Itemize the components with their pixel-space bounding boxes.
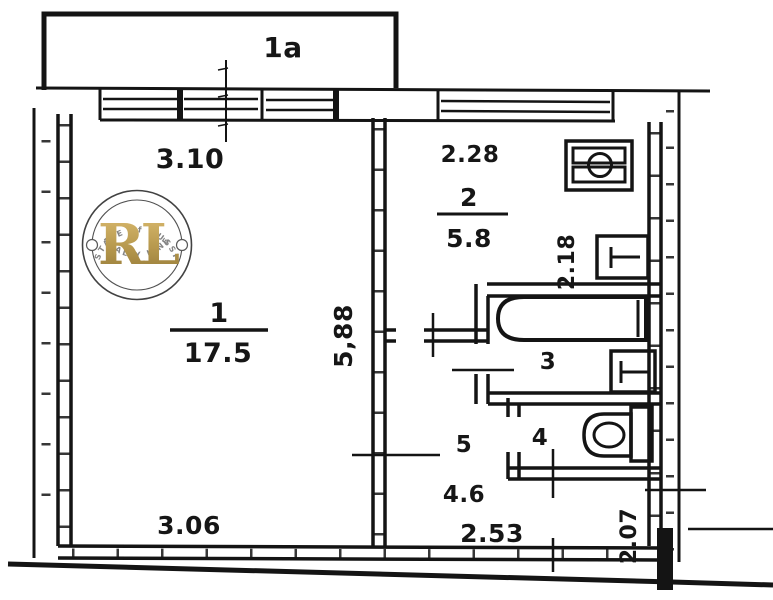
- room3-number: 3: [540, 349, 557, 375]
- window-band: [36, 88, 710, 121]
- kitchen-width-dim: 2.28: [441, 142, 500, 168]
- room1-width-top-dim: 3.10: [156, 144, 225, 175]
- bathtub-icon: [498, 297, 646, 340]
- stamp-monogram: RL: [98, 212, 180, 278]
- kitchen-sink-icon: [597, 236, 648, 278]
- floor-plan-drawing: 1a: [0, 0, 773, 600]
- kitchen-bottom-wall: [386, 330, 487, 341]
- room2-labels: 2.28 2 5.8: [437, 142, 508, 253]
- stove-icon: [566, 141, 632, 190]
- room1-width-bottom-dim: 3.06: [157, 511, 221, 540]
- floor-plan-page: 1a: [0, 0, 773, 600]
- right-unit-wall: [649, 122, 661, 546]
- toilet-icon: [584, 407, 652, 461]
- room2-number: 2: [460, 183, 478, 212]
- room4-number: 4: [532, 425, 549, 451]
- stamp-left-dot: [87, 240, 98, 251]
- kitchen-depth-dim: 2.18: [555, 234, 580, 290]
- stamp-right-dot: [177, 240, 188, 251]
- balcony-label: 1a: [263, 31, 302, 64]
- right-exterior-line: [670, 92, 679, 562]
- bottom-wall: [58, 546, 662, 560]
- room1-labels: 1 17.5: [170, 298, 268, 369]
- entry-depth-dim: 2.07: [617, 508, 642, 564]
- room-divider-wall: [373, 118, 385, 546]
- room1-number: 1: [209, 298, 228, 329]
- balcony-outline: [44, 14, 396, 90]
- hall-width-dim: 2.53: [460, 519, 524, 548]
- room2-area: 5.8: [446, 224, 492, 253]
- room1-depth-dim: 5,88: [329, 304, 358, 368]
- left-exterior-wall: [34, 108, 71, 558]
- entry-opening: [645, 490, 773, 590]
- room1-area: 17.5: [184, 338, 253, 369]
- window-dividers: [100, 88, 613, 121]
- room5-area: 4.6: [443, 482, 485, 508]
- room5-number: 5: [456, 432, 473, 458]
